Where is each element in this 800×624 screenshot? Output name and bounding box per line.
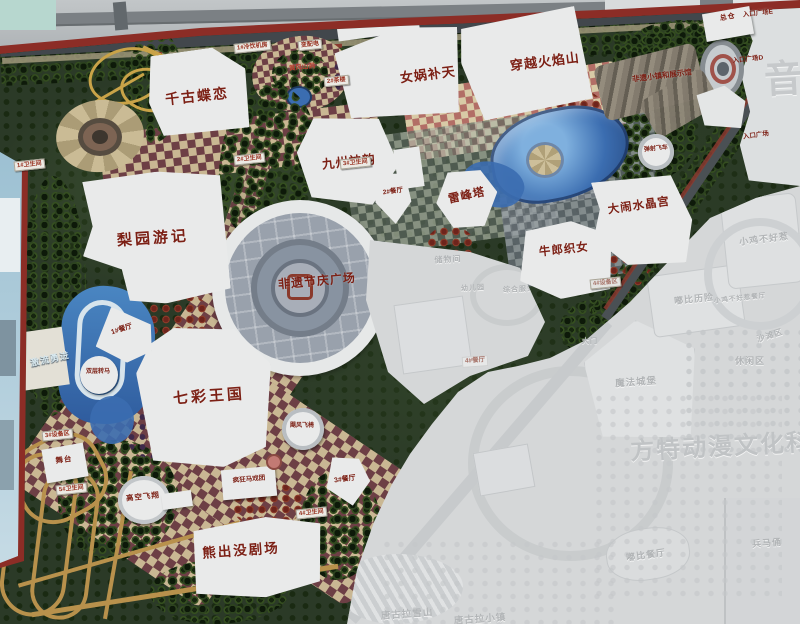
pond-island-plaza — [526, 142, 564, 178]
sky-highlight — [0, 198, 20, 272]
restaurant-4-label: 4#餐厅 — [462, 355, 489, 368]
faded-label: 幼儿园 — [456, 282, 490, 294]
wall-post — [113, 1, 128, 30]
radial-plaza-center — [92, 130, 108, 144]
attraction-label: 双层转马 — [76, 369, 120, 376]
faded-label: 休闲区 — [730, 354, 770, 367]
park-map-photo: 嘟比历险 小鸡不好惹 小鸡不好惹餐厅 休闲区 沙滩区 魔法城堡 嘟比餐厅 唐古拉… — [0, 0, 800, 624]
attraction-label: 飓风飞椅 — [278, 423, 326, 430]
wall-corner-cyan — [0, 0, 56, 30]
circus-tent — [266, 454, 282, 470]
faded-building — [393, 295, 472, 374]
faded-tree-dots — [592, 392, 782, 602]
faded-label: 大门 — [578, 336, 602, 346]
faded-label: 储物间 — [428, 253, 469, 266]
log-flume-pool — [90, 396, 134, 444]
sky-shadow — [0, 420, 14, 490]
